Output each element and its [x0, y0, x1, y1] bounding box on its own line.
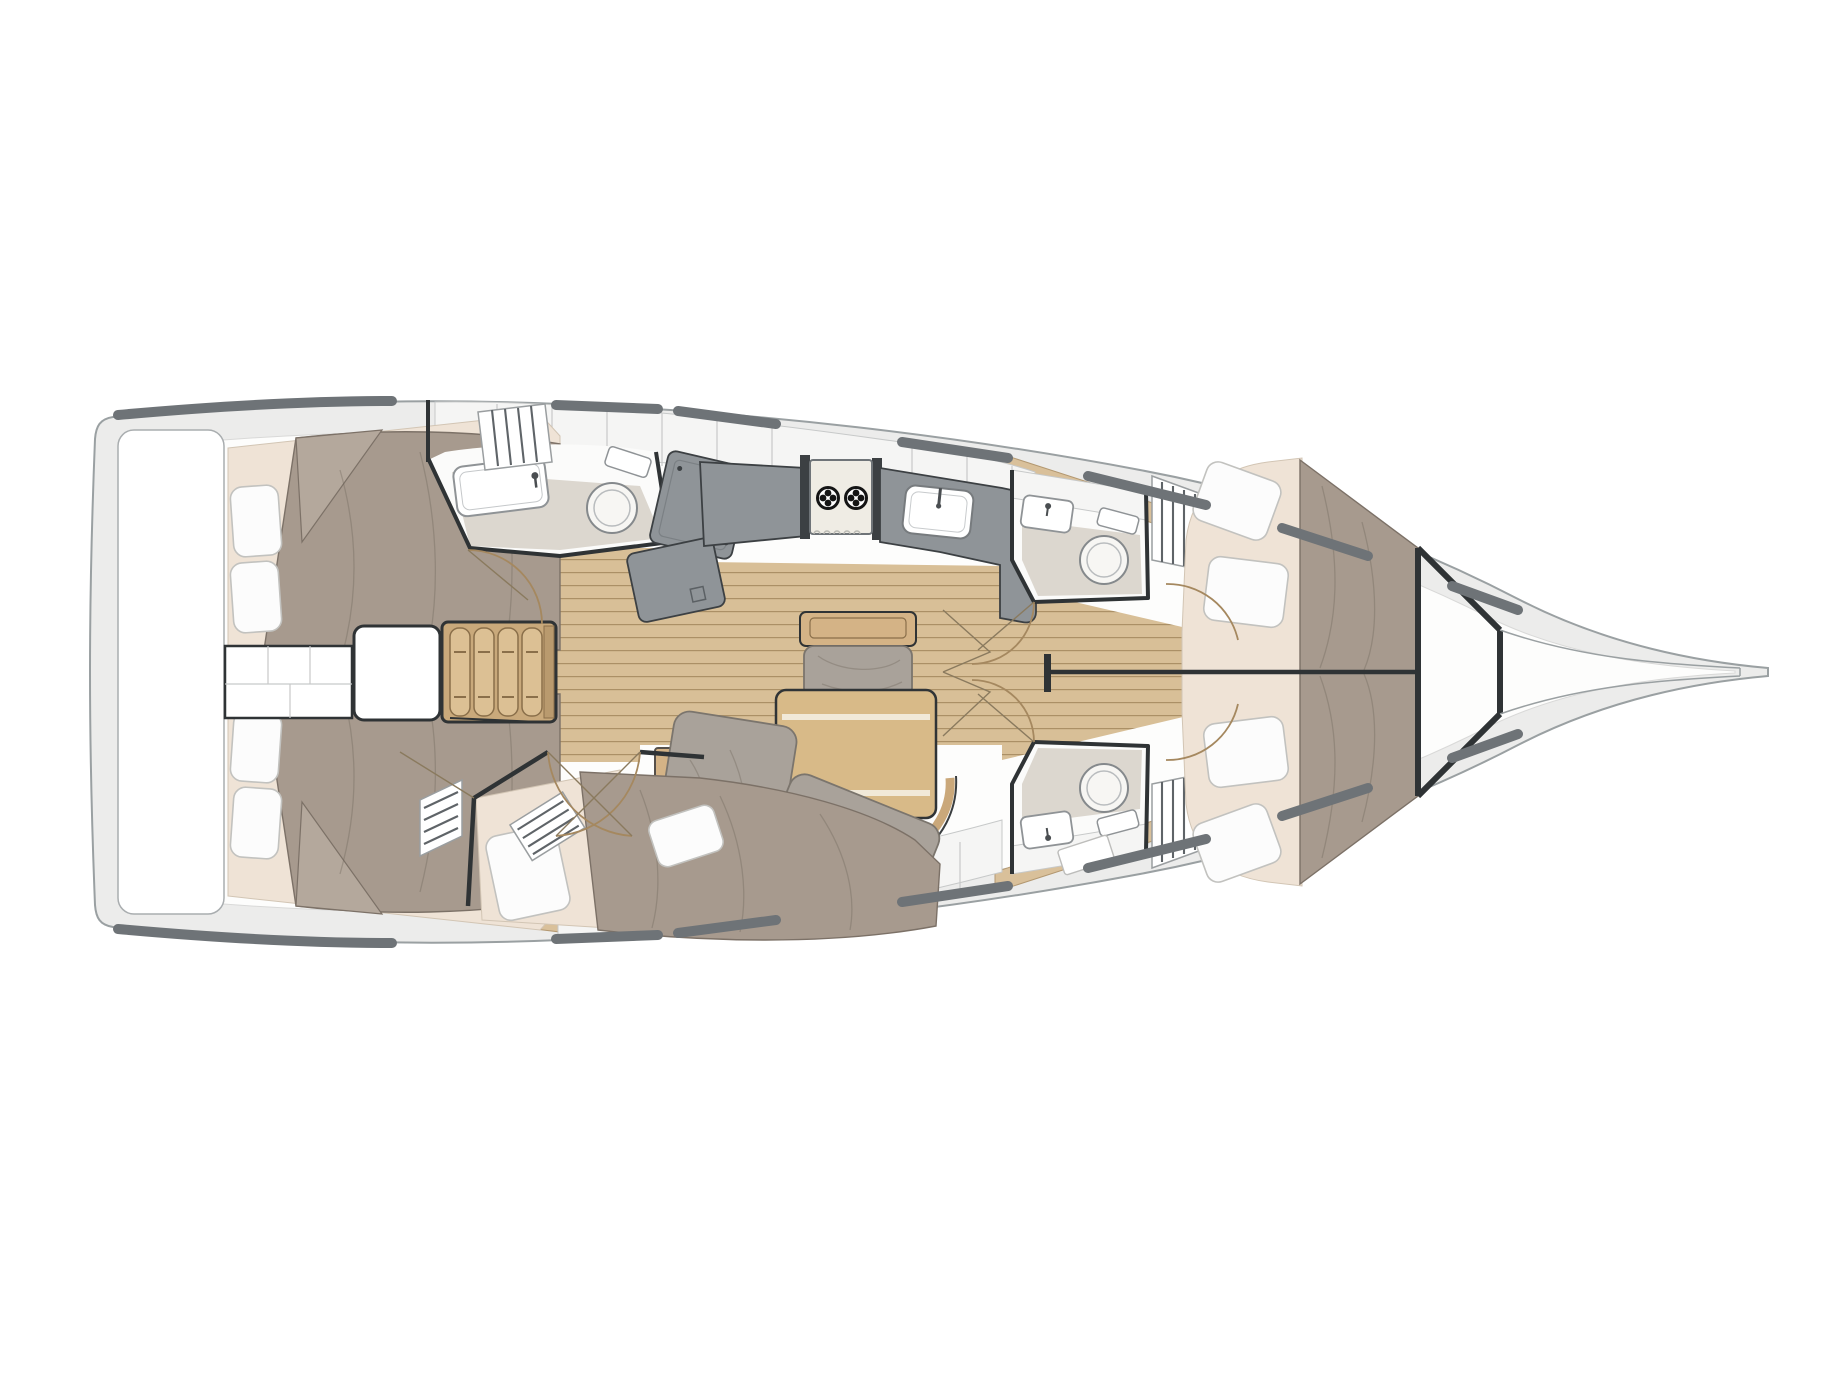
pillow [1202, 555, 1289, 628]
stern-lazarette: Stern lazarette / transom locker [118, 430, 224, 914]
stove [810, 460, 872, 534]
boat-floor-plan: Hull outline (bow to the right) Stern la… [0, 0, 1832, 1374]
stair-rail [544, 626, 554, 718]
engine-compartment: Engine / storage compartment [225, 646, 352, 718]
pillow [230, 560, 283, 633]
bathroom-sink [1020, 811, 1074, 850]
galley-counter-left [700, 462, 806, 546]
lazarette-box [118, 430, 224, 914]
floor-plan-page: Hull outline (bow to the right) Stern la… [0, 0, 1832, 1374]
louver-locker [478, 404, 552, 470]
pillow [230, 786, 283, 859]
pillow [230, 484, 283, 557]
pillow [1202, 715, 1289, 788]
companionway-steps: Companionway steps [354, 622, 556, 722]
bathroom-sink [1020, 495, 1074, 534]
pillow [230, 710, 283, 783]
bench-seat [800, 612, 916, 698]
companionway-landing [354, 626, 440, 720]
burner [846, 488, 867, 509]
galley-sink [902, 485, 975, 540]
burner [818, 488, 839, 509]
stove-recess-wall [800, 455, 810, 539]
